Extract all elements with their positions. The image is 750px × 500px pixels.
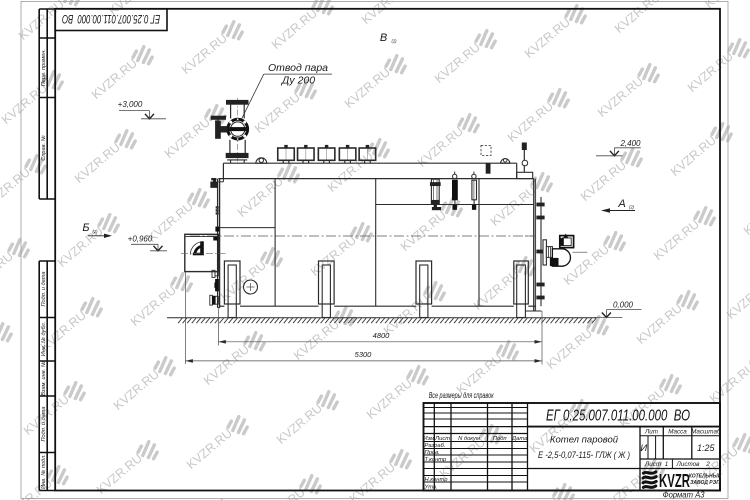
svg-text:Утв.: Утв. [424,485,438,491]
svg-text:Справ. №: Справ. № [41,135,47,160]
svg-text:Формат А3: Формат А3 [663,491,705,500]
svg-text:Перв. примен.: Перв. примен. [41,49,47,86]
svg-text:2,400: 2,400 [619,139,641,148]
svg-text:(2): (2) [92,229,98,234]
svg-text:Инв. № дубл.: Инв. № дубл. [41,322,47,356]
svg-text:Котел паровой: Котел паровой [550,435,619,446]
svg-text:И: И [640,443,647,454]
svg-text:Дата: Дата [511,436,528,442]
svg-text:ЕГ 0.25.007.011.00.000 ВО: ЕГ 0.25.007.011.00.000 ВО [546,407,690,424]
svg-text:Все размеры для справок: Все размеры для справок [429,391,494,400]
svg-text:(2): (2) [629,205,635,210]
svg-text:Отвод пара: Отвод пара [268,62,328,74]
svg-text:ЗАВОД РЭП: ЗАВОД РЭП [690,480,720,486]
svg-text:Лит: Лит [644,429,658,436]
svg-text:Т.контр: Т.контр [425,457,448,463]
svg-text:Лист: Лист [434,436,450,442]
svg-text:Подп: Подп [493,436,508,442]
svg-text:А: А [617,198,625,210]
svg-text:Изм: Изм [423,436,434,442]
svg-text:Е -2,5-0,07-115- ГЛЖ ( Ж ): Е -2,5-0,07-115- ГЛЖ ( Ж ) [538,450,630,460]
svg-text:KVZR: KVZR [659,470,690,491]
svg-text:Листов: Листов [676,461,701,468]
svg-text:(2): (2) [391,39,397,44]
svg-text:4800: 4800 [373,331,391,340]
svg-text:КОТЕЛЬНЫЙ: КОТЕЛЬНЫЙ [689,472,722,480]
svg-text:Масса: Масса [668,429,687,436]
svg-text:Масштаб: Масштаб [691,428,721,436]
svg-text:1:25: 1:25 [697,443,716,453]
svg-text:Взам. инв. №: Взам. инв. № [41,361,47,396]
svg-text:Инв. № подл.: Инв. № подл. [41,454,47,489]
svg-text:1: 1 [665,461,669,468]
svg-text:2: 2 [705,461,710,468]
svg-text:Разраб.: Разраб. [425,443,446,449]
svg-text:+3,000: +3,000 [118,100,143,109]
svg-text:Ду 200: Ду 200 [281,75,315,87]
svg-text:N докум: N докум [458,436,480,442]
svg-text:Подп. и дата: Подп. и дата [41,406,47,441]
svg-text:В: В [380,32,387,44]
svg-text:0,000: 0,000 [613,301,634,310]
svg-text:+0,960: +0,960 [128,235,153,244]
svg-text:Н.контр: Н.контр [425,477,449,483]
svg-text:Пров.: Пров. [425,450,440,456]
svg-text:5300: 5300 [355,350,373,359]
svg-text:ЕГ 0.25.007.011.00.000 ВО: ЕГ 0.25.007.011.00.000 ВО [62,12,160,26]
svg-text:Б: Б [82,222,89,234]
svg-text:Лист: Лист [644,461,661,468]
svg-text:Подп. и дата: Подп. и дата [41,271,47,306]
